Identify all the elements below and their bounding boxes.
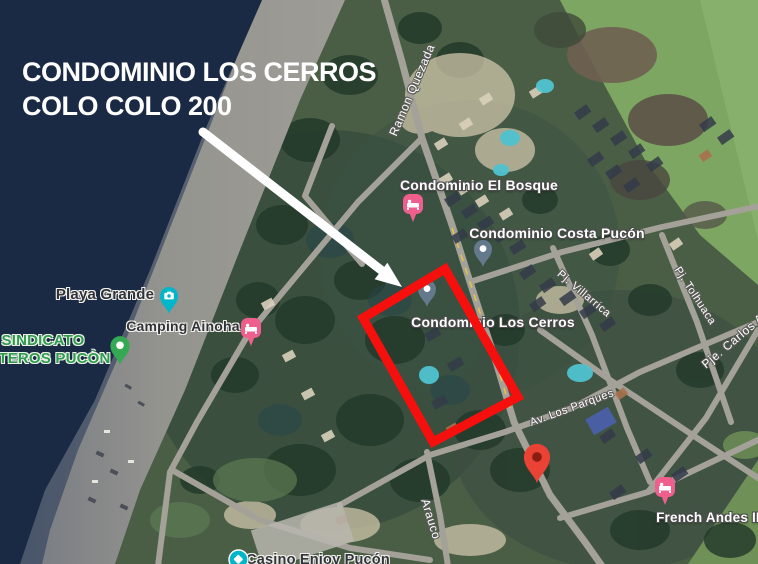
label-condominio-costa-pucon: Condominio Costa Pucón [469, 225, 645, 241]
annotation-title: CONDOMINIO LOS CERROS COLO COLO 200 [22, 55, 376, 123]
los-cerros-pin[interactable] [416, 278, 438, 308]
satellite-map[interactable]: Condominio El Bosque Condominio Costa Pu… [0, 0, 758, 564]
lodging-pin-shape [403, 194, 423, 222]
label-playa-grande: Playa Grande [56, 286, 154, 303]
destination-marker-icon[interactable] [522, 443, 552, 484]
round-pin-shape [418, 280, 436, 307]
french-andes-lodging-pin[interactable] [654, 476, 676, 506]
costa-pucon-pin[interactable] [472, 238, 494, 268]
sindicato-line2: BOTEROS PUCÒN [0, 350, 111, 368]
annotation-title-line2: COLO COLO 200 [22, 89, 376, 123]
round-pin-shape [160, 287, 178, 314]
round-pin-shape [474, 240, 492, 267]
sindicato-line1: SINDICATO [0, 332, 111, 350]
lodging-pin-shape [241, 318, 261, 346]
camping-ainoha-lodging-pin[interactable] [240, 317, 262, 347]
sindicato-boteros-pin[interactable] [108, 334, 132, 366]
label-camping-ainoha: Camping Ainoha [126, 318, 240, 334]
lodging-pin-shape [655, 477, 675, 505]
label-french-andes: French Andes II [656, 510, 758, 525]
round-pin-shape [110, 336, 129, 365]
el-bosque-lodging-pin[interactable] [402, 193, 424, 223]
label-condominio-los-cerros: Condominio Los Cerros [411, 314, 575, 330]
label-sindicato-boteros: SINDICATO BOTEROS PUCÒN [0, 332, 111, 368]
label-condominio-el-bosque: Condominio El Bosque [400, 177, 558, 193]
label-casino-enjoy-pucon: Casino Enjoy Pucón [246, 552, 390, 564]
casino-poi-icon[interactable] [228, 549, 249, 564]
playa-grande-pin[interactable] [158, 285, 180, 315]
dot-icon [480, 245, 487, 252]
dot-icon [424, 285, 431, 292]
dot-icon [116, 341, 124, 349]
annotation-title-line1: CONDOMINIO LOS CERROS [22, 55, 376, 89]
